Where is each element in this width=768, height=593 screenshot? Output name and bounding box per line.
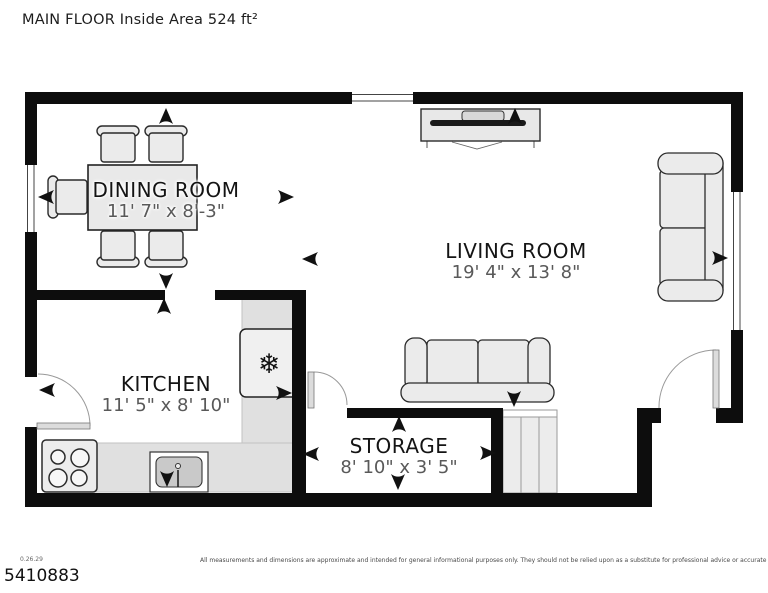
snowflake-icon: ❄ — [258, 349, 281, 380]
direction-arrow-icon — [157, 298, 171, 314]
dining-table — [88, 165, 197, 230]
floor-plan-drawing: ❄ — [0, 0, 768, 593]
version-number: 0.26.29 — [20, 556, 43, 563]
exterior-door-kitchen — [37, 374, 90, 429]
stove — [42, 440, 97, 492]
wall — [716, 408, 743, 423]
wall — [37, 290, 165, 300]
sink — [150, 452, 208, 492]
disclaimer-text: All measurements and dimensions are appr… — [200, 557, 768, 564]
dining-chair — [145, 231, 187, 267]
direction-arrow-icon — [39, 383, 55, 397]
wall — [637, 408, 652, 507]
wall — [652, 408, 661, 423]
direction-arrow-icon — [391, 474, 405, 490]
wall — [25, 493, 652, 507]
storage-door — [308, 372, 347, 408]
loveseat — [401, 338, 554, 402]
dining-chair — [97, 231, 139, 267]
direction-arrow-icon — [278, 190, 294, 204]
wall — [731, 92, 743, 192]
stairs — [503, 410, 557, 493]
window — [731, 192, 743, 330]
wall — [25, 92, 352, 104]
window — [352, 92, 413, 104]
window — [25, 165, 37, 232]
wall — [25, 92, 37, 165]
dining-chair — [48, 176, 87, 218]
wall — [413, 92, 743, 104]
wall — [25, 232, 37, 377]
dining-set — [48, 126, 197, 267]
tv-icon — [462, 111, 504, 121]
direction-arrow-icon — [302, 252, 318, 266]
dining-chair — [97, 126, 139, 162]
wall — [347, 408, 503, 418]
plan-number: 5410883 — [4, 566, 80, 586]
tv-console — [421, 109, 540, 149]
dining-chair — [145, 126, 187, 162]
direction-arrow-icon — [159, 108, 173, 124]
direction-arrow-icon — [392, 416, 406, 432]
floor-plan-page: MAIN FLOOR Inside Area 524 ft² — [0, 0, 768, 593]
faucet-icon — [176, 464, 181, 469]
entry-door — [659, 350, 719, 408]
wall — [292, 290, 306, 507]
sofa — [658, 153, 723, 301]
refrigerator: ❄ — [240, 329, 298, 397]
wall — [491, 408, 503, 507]
direction-arrow-icon — [159, 273, 173, 289]
